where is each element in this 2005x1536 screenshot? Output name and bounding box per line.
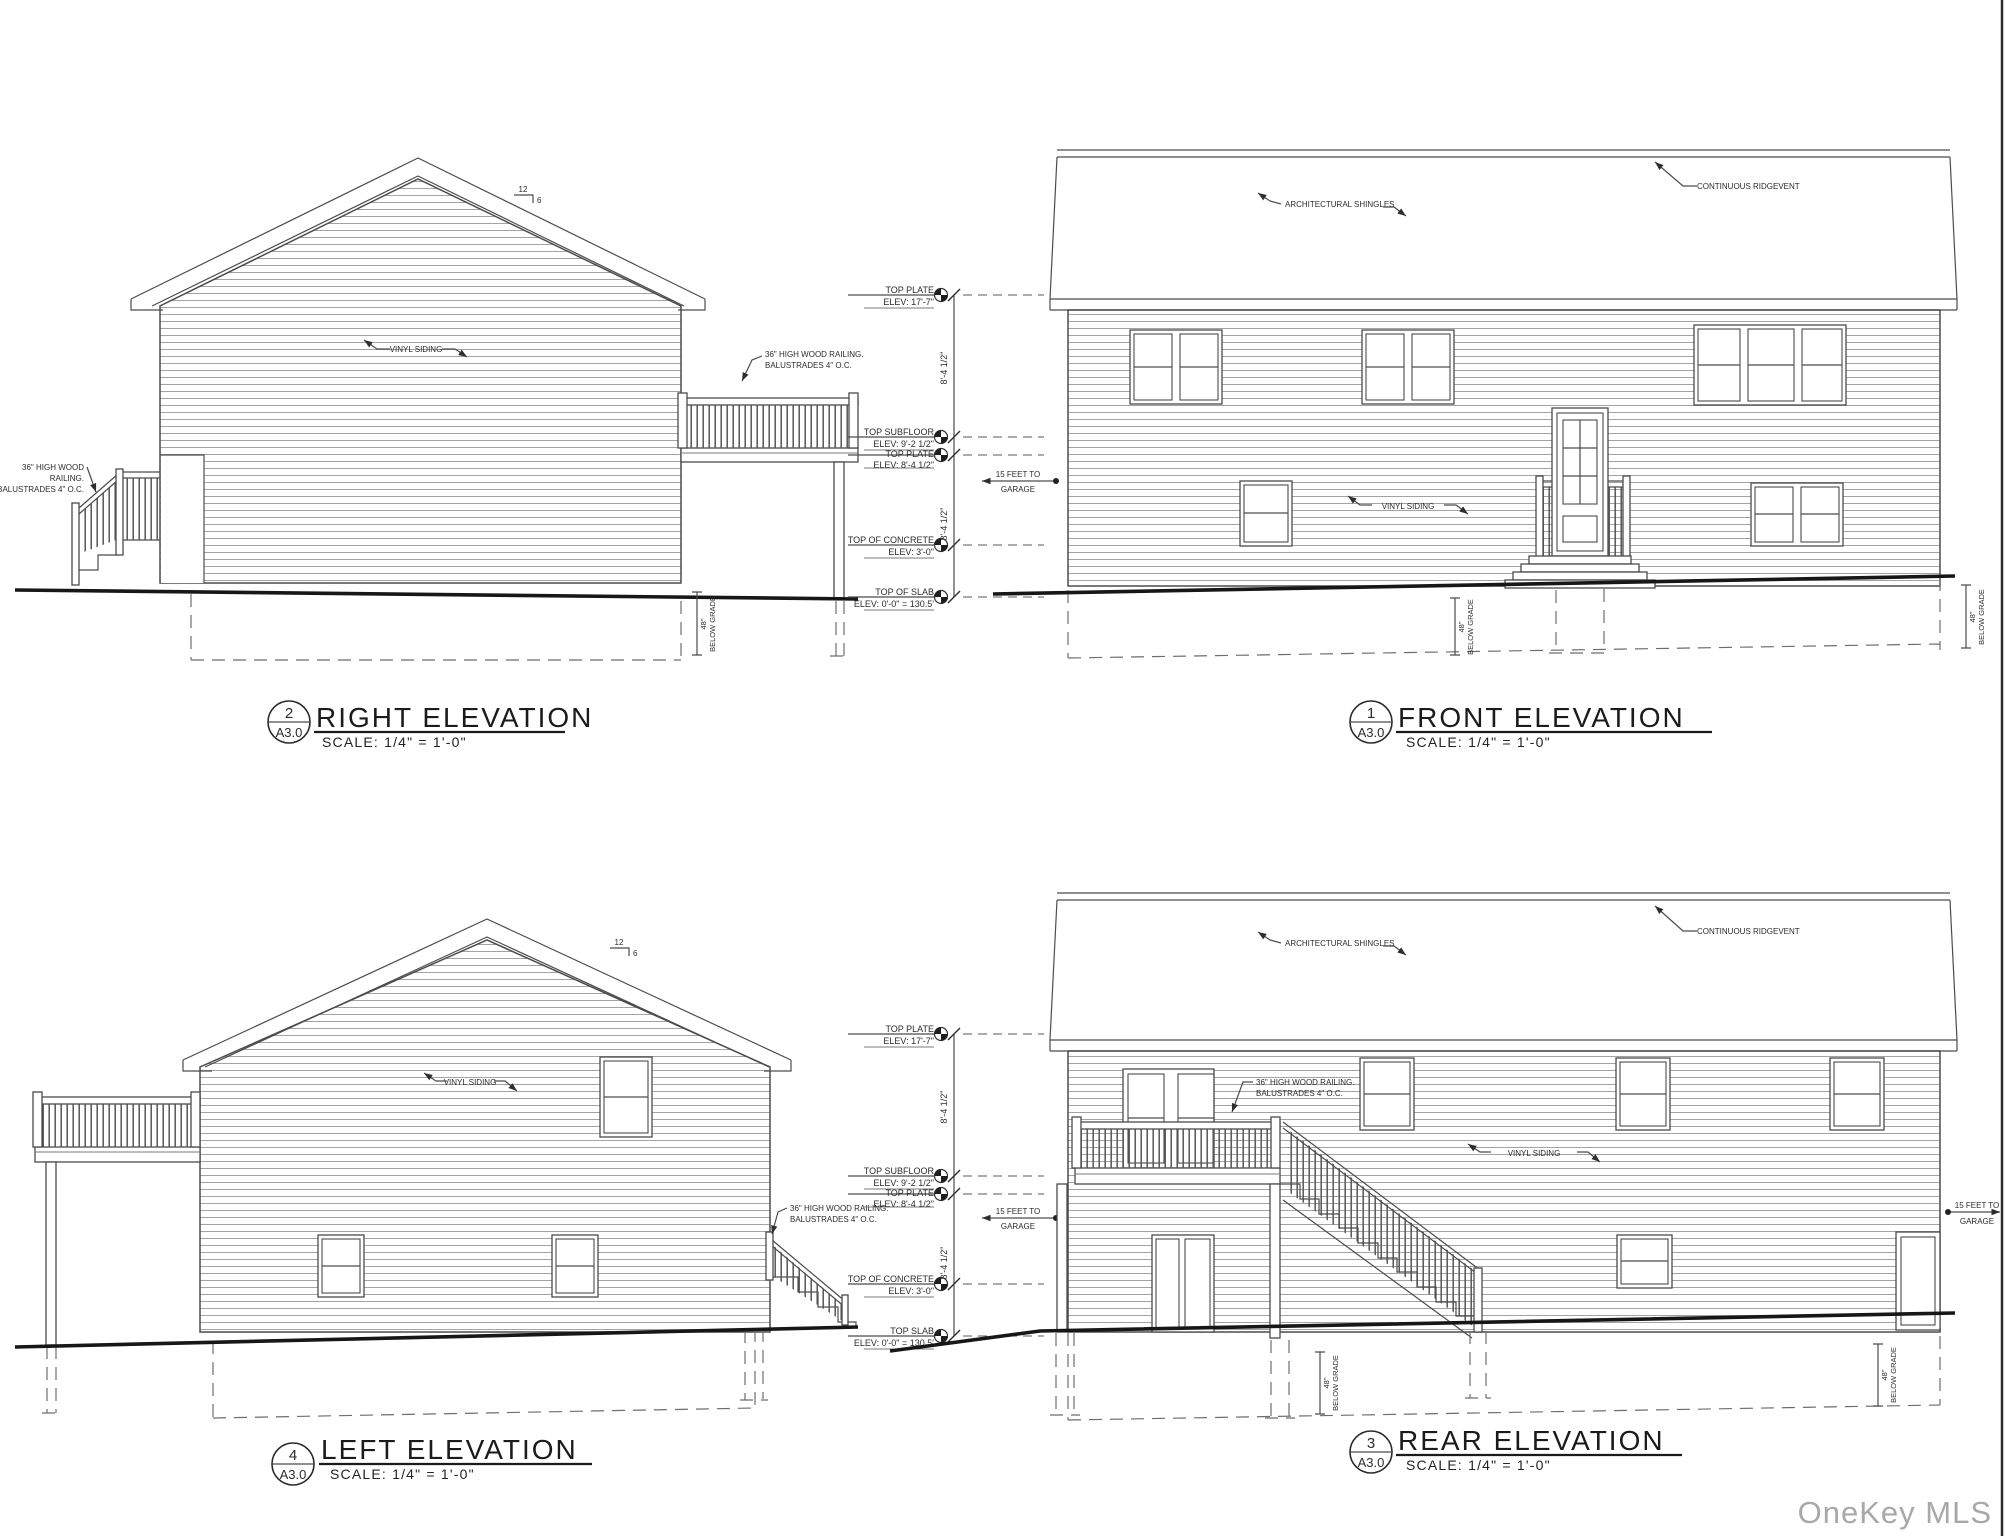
deck-post: [1057, 1184, 1067, 1332]
garage-label-line2: GARAGE: [1960, 1217, 1994, 1226]
upper-dimension-stack: TOP PLATE ELEV: 17'-7" TOP SUBFLOOR ELEV…: [848, 285, 1059, 610]
dim-span-label: 8'-4 1/2": [939, 1091, 949, 1124]
dim-row-name: TOP PLATE: [885, 1024, 934, 1034]
garage-label-line1: 15 FEET TO: [1955, 1201, 1999, 1210]
below-grade-48-label: 48": [1457, 621, 1466, 632]
front-elevation-drawing: 48" BELOW GRADE 48" BELOW GRADE ARCHITEC…: [993, 150, 1986, 658]
rear-below-grade-dim-right: 48" BELOW GRADE: [1873, 1344, 1898, 1406]
left-elevation-drawing: VINYL SIDING 36" HIGH WOOD RAILING. BALU…: [15, 919, 888, 1418]
elevations-drawing: 48" BELOW GRADE 36" HIGH WOOD RAILING. B…: [0, 0, 2005, 1536]
dim-row-name: TOP PLATE: [885, 449, 934, 459]
rear-window-upper-2: [1616, 1058, 1670, 1130]
rear-garage-dim-right: 15 FEET TO GARAGE: [1945, 1201, 2000, 1226]
dim-span-label: 8'-4 1/2": [939, 1247, 949, 1280]
scale-text: SCALE: 1/4" = 1'-0": [322, 734, 467, 750]
vinyl-siding-label: VINYL SIDING: [390, 345, 443, 354]
benchmark-icon: [935, 431, 948, 444]
ridgevent-label: CONTINUOUS RIDGEVENT: [1697, 182, 1800, 191]
front-below-grade-dim-right: 48" BELOW GRADE: [1961, 585, 1986, 648]
sheet-number: A3.0: [1358, 1455, 1385, 1470]
title-rear-elevation: 3 A3.0 REAR ELEVATION SCALE: 1/4" = 1'-0…: [1350, 1425, 1682, 1473]
elevation-title: RIGHT ELEVATION: [316, 702, 593, 733]
dim-row-elev: ELEV: 9'-2 1/2": [873, 439, 934, 449]
dim-span-label: 8'-4 1/2": [939, 352, 949, 385]
dim-row-elev: ELEV: 3'-0": [888, 547, 934, 557]
scale-text: SCALE: 1/4" = 1'-0": [330, 1466, 475, 1482]
benchmark-icon: [935, 591, 948, 604]
below-grade-label: BELOW GRADE: [1331, 1355, 1340, 1411]
railing-label-line2: RAILING.: [50, 474, 84, 483]
rear-window-upper-3: [1830, 1058, 1884, 1130]
shingles-leader-left: [1258, 932, 1281, 943]
shingles-label: ARCHITECTURAL SHINGLES: [1285, 200, 1395, 209]
benchmark-icon: [935, 1170, 948, 1183]
garage-label-line2: GARAGE: [1001, 485, 1035, 494]
rear-below-grade-dim-left: 48" BELOW GRADE: [1315, 1352, 1340, 1414]
dim-row-elev: ELEV: 17'-7": [883, 297, 934, 307]
left-window-upper: [600, 1057, 652, 1137]
dim-row-name: TOP PLATE: [885, 285, 934, 295]
sheet-number: A3.0: [280, 1467, 307, 1482]
right-foundation-dashed: [191, 594, 850, 660]
front-entry-door: [1552, 408, 1608, 556]
benchmark-icon: [935, 449, 948, 462]
front-window-pair-center: [1362, 330, 1454, 404]
railing-leader: [87, 467, 96, 492]
front-window-large-right: [1694, 325, 1846, 405]
dim-row-name: TOP OF CONCRETE: [848, 535, 934, 545]
detail-number: 2: [285, 705, 293, 722]
dim-row-elev: ELEV: 8'-4 1/2": [873, 1199, 934, 1209]
dim-span-label: 8'-4 1/2": [939, 508, 949, 541]
dim-row-elev: ELEV: 3'-0": [888, 1286, 934, 1296]
ridgevent-label: CONTINUOUS RIDGEVENT: [1697, 927, 1800, 936]
left-deck: [33, 1092, 200, 1345]
front-below-grade-dim-center: 48" BELOW GRADE: [1450, 598, 1475, 655]
below-grade-label: BELOW GRADE: [1466, 599, 1475, 655]
detail-number: 4: [289, 1447, 297, 1464]
front-roof-lines: [1050, 150, 1957, 310]
dim-row-elev: ELEV: 17'-7": [883, 1036, 934, 1046]
right-stairs: [72, 469, 160, 585]
elevation-title: LEFT ELEVATION: [321, 1434, 578, 1465]
ridgevent-leader: [1655, 162, 1697, 186]
sheet-number: A3.0: [276, 725, 303, 740]
right-elevation-drawing: 48" BELOW GRADE 36" HIGH WOOD RAILING. B…: [0, 158, 863, 660]
left-gable-wall: [200, 940, 770, 1332]
rear-window-lower: [1617, 1235, 1672, 1288]
pitch-mark: [514, 195, 533, 203]
deck-balusters: [684, 405, 855, 448]
below-grade-label: BELOW GRADE: [1889, 1347, 1898, 1403]
watermark: OneKey MLS: [1798, 1495, 1992, 1530]
dim-row-elev: ELEV: 8'-4 1/2": [873, 460, 934, 470]
benchmark-icon: [935, 289, 948, 302]
dim-row-name: TOP OF CONCRETE: [848, 1274, 934, 1284]
pitch-rise-label: 12: [615, 938, 624, 947]
right-foundation-wall: [161, 456, 204, 583]
dim-row-name: TOP PLATE: [885, 1188, 934, 1198]
rear-roof-lines: [1050, 893, 1957, 1051]
ridgevent-leader: [1655, 906, 1697, 931]
railing-label-line3: BALUSTRADES 4" O.C.: [0, 485, 84, 494]
below-grade-48-label: 48": [699, 618, 708, 629]
detail-number: 3: [1367, 1435, 1375, 1452]
rear-elevation-drawing: 48" BELOW GRADE 48" BELOW GRADE 15 FEET …: [890, 893, 2000, 1420]
right-gable-wall: [160, 179, 681, 583]
pitch-rise-label: 12: [519, 185, 528, 194]
title-front-elevation: 1 A3.0 FRONT ELEVATION SCALE: 1/4" = 1'-…: [1350, 701, 1712, 750]
railing-label-line1: 36" HIGH WOOD: [22, 463, 84, 472]
pitch-mark: [610, 948, 629, 956]
garage-label-line1: 15 FEET TO: [996, 470, 1040, 479]
dim-row-elev: ELEV: 9'-2 1/2": [873, 1178, 934, 1188]
below-grade-label: BELOW GRADE: [708, 596, 717, 652]
left-window-lower-2: [552, 1235, 598, 1297]
deck-post: [46, 1162, 56, 1345]
pitch-run-label: 6: [633, 949, 638, 958]
scale-text: SCALE: 1/4" = 1'-0": [1406, 1457, 1551, 1473]
railing-label-line1: 36" HIGH WOOD RAILING.: [1256, 1078, 1354, 1087]
dim-row-name: TOP SLAB: [890, 1326, 934, 1336]
vinyl-siding-label: VINYL SIDING: [1508, 1149, 1561, 1158]
front-window-pair-left: [1130, 330, 1222, 404]
dim-row-name: TOP SUBFLOOR: [864, 1166, 935, 1176]
pitch-run-label: 6: [537, 196, 542, 205]
left-window-lower-1: [318, 1235, 364, 1297]
title-right-elevation: 2 A3.0 RIGHT ELEVATION SCALE: 1/4" = 1'-…: [268, 701, 593, 750]
below-grade-48-label: 48": [1322, 1377, 1331, 1388]
deck-railing-leader: [742, 356, 762, 381]
below-grade-48-label: 48": [1880, 1369, 1889, 1380]
lower-dimension-stack: TOP PLATE ELEV: 17'-7" TOP SUBFLOOR ELEV…: [848, 1024, 1059, 1349]
elevation-title: REAR ELEVATION: [1398, 1425, 1665, 1456]
rear-basement-door: [1152, 1235, 1214, 1332]
right-deck: [678, 393, 858, 599]
rear-window-upper-1: [1360, 1058, 1414, 1130]
front-window-lower-right: [1751, 483, 1843, 546]
sheet-number: A3.0: [1358, 725, 1385, 740]
detail-number: 1: [1367, 705, 1375, 722]
right-below-grade-dim: 48" BELOW GRADE: [692, 592, 717, 655]
shingles-label: ARCHITECTURAL SHINGLES: [1285, 939, 1395, 948]
elevation-title: FRONT ELEVATION: [1398, 702, 1685, 733]
railing-leader: [772, 1208, 787, 1234]
benchmark-icon: [935, 1188, 948, 1201]
title-left-elevation: 4 A3.0 LEFT ELEVATION SCALE: 1/4" = 1'-0…: [272, 1434, 592, 1485]
dim-row-elev: ELEV: 0'-0" = 130.5': [854, 599, 934, 609]
right-grade-line: [15, 590, 858, 599]
architectural-elevation-sheet: 48" BELOW GRADE 36" HIGH WOOD RAILING. B…: [0, 0, 2005, 1536]
vinyl-siding-label: VINYL SIDING: [444, 1078, 497, 1087]
below-grade-48-label: 48": [1968, 611, 1977, 622]
leader-dot: [1053, 478, 1059, 484]
railing-label-line2: BALUSTRADES 4" O.C.: [1256, 1089, 1343, 1098]
garage-label-line2: GARAGE: [1001, 1222, 1035, 1231]
deck-post: [1270, 1184, 1280, 1338]
railing-label-line2: BALUSTRADES 4" O.C.: [790, 1215, 877, 1224]
deck-railing-label-line2: BALUSTRADES 4" O.C.: [765, 361, 852, 370]
below-grade-label: BELOW GRADE: [1977, 589, 1986, 645]
garage-label-line1: 15 FEET TO: [996, 1207, 1040, 1216]
left-stairs: [766, 1232, 856, 1328]
deck-post: [834, 462, 844, 599]
scale-text: SCALE: 1/4" = 1'-0": [1406, 734, 1551, 750]
shingles-leader-left: [1258, 193, 1281, 204]
deck-railing-label-line1: 36" HIGH WOOD RAILING.: [765, 350, 863, 359]
vinyl-siding-label: VINYL SIDING: [1382, 502, 1435, 511]
leader-dot: [1945, 1209, 1951, 1215]
dim-row-name: TOP SUBFLOOR: [864, 427, 935, 437]
benchmark-icon: [935, 1330, 948, 1343]
front-window-lower-left: [1240, 481, 1292, 546]
benchmark-icon: [935, 1028, 948, 1041]
dim-row-name: TOP OF SLAB: [875, 587, 934, 597]
